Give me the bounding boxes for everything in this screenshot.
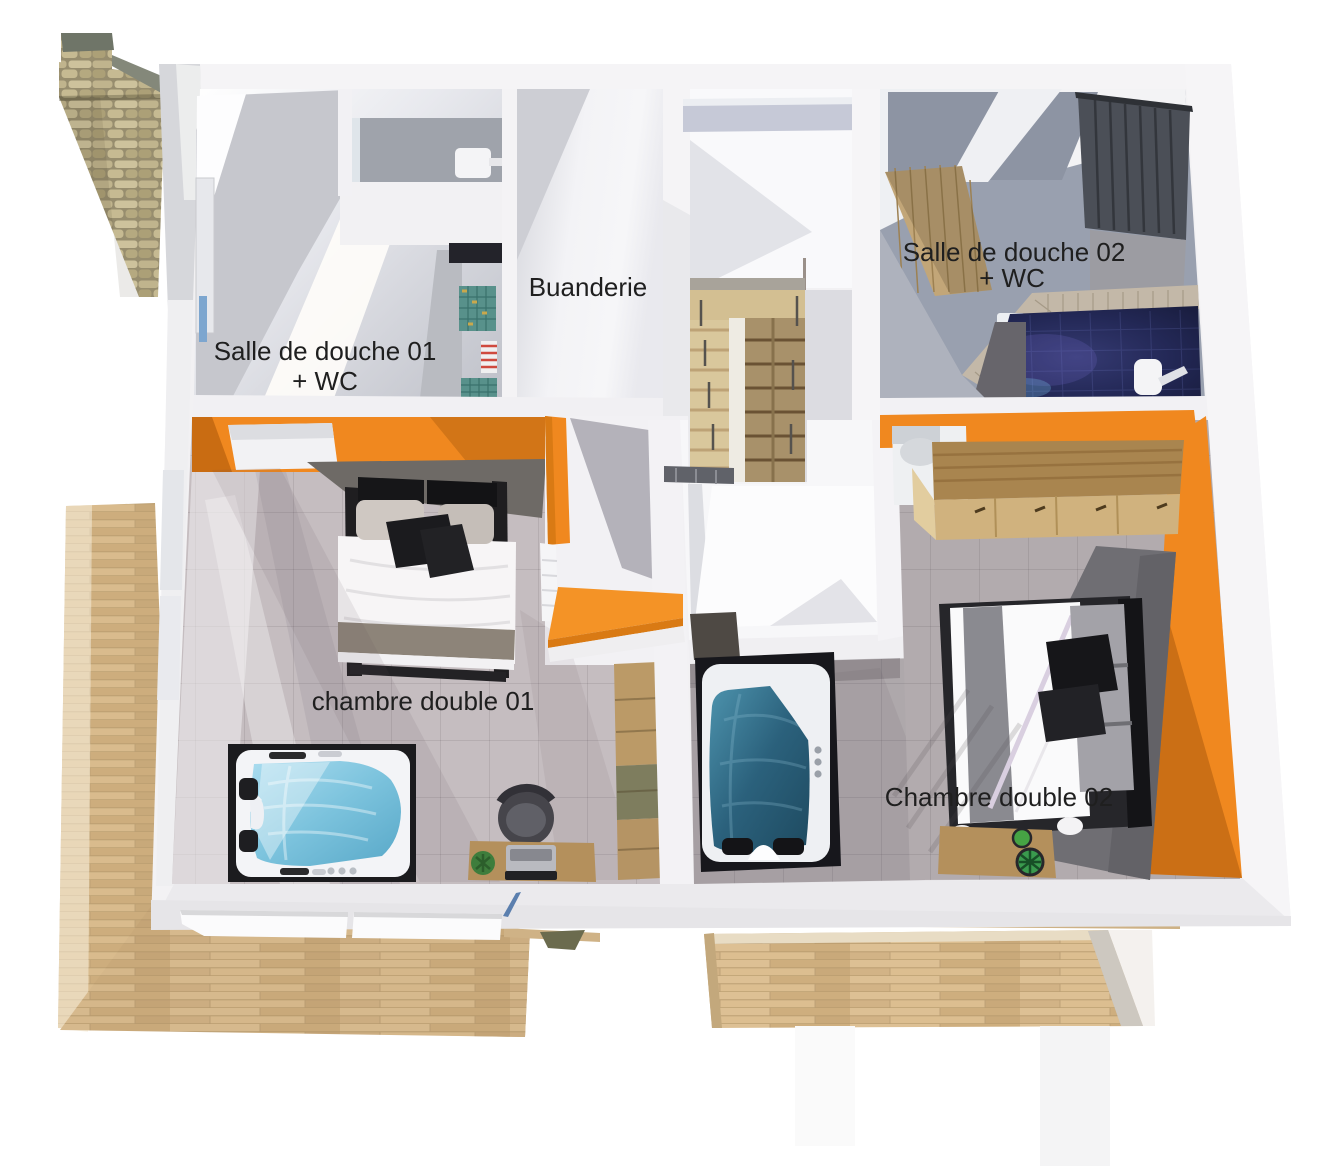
svg-text:+ WC: + WC — [979, 263, 1045, 293]
svg-text:Buanderie: Buanderie — [529, 272, 648, 302]
svg-text:Chambre double 02: Chambre double 02 — [885, 782, 1113, 812]
svg-text:+ WC: + WC — [292, 366, 358, 396]
svg-text:chambre double 01: chambre double 01 — [312, 686, 535, 716]
svg-text:Salle de douche 01: Salle de douche 01 — [214, 336, 437, 366]
